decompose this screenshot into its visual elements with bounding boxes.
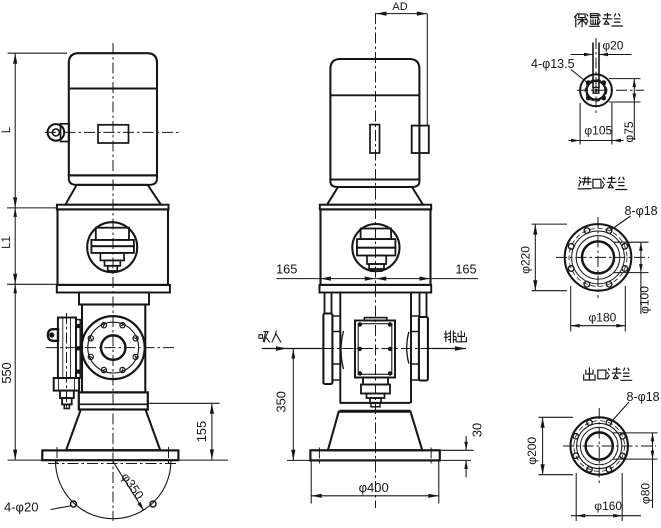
svg-text:φ80: φ80 (638, 483, 652, 504)
svg-text:AD: AD (392, 1, 407, 13)
svg-text:4-φ20: 4-φ20 (4, 500, 38, 515)
svg-text:φ180: φ180 (588, 310, 616, 324)
svg-text:165: 165 (455, 262, 476, 277)
svg-text:350: 350 (274, 391, 289, 412)
svg-text:30: 30 (469, 423, 484, 437)
svg-text:165: 165 (276, 261, 297, 276)
svg-text:4-φ13.5: 4-φ13.5 (531, 57, 575, 71)
svg-text:φ105: φ105 (584, 123, 612, 137)
svg-text:φ160: φ160 (594, 499, 622, 513)
svg-text:φ100: φ100 (638, 286, 652, 314)
svg-text:φ200: φ200 (525, 437, 539, 465)
svg-text:φ220: φ220 (519, 246, 533, 274)
svg-text:φ75: φ75 (622, 121, 636, 142)
svg-text:8-φ18: 8-φ18 (627, 390, 660, 404)
svg-text:550: 550 (0, 362, 14, 383)
svg-text:L: L (1, 126, 13, 133)
svg-text:φ20: φ20 (602, 38, 623, 52)
svg-text:φ400: φ400 (359, 480, 389, 495)
svg-text:L1: L1 (1, 236, 13, 249)
svg-text:155: 155 (194, 421, 209, 442)
svg-text:8-φ18: 8-φ18 (625, 204, 658, 218)
